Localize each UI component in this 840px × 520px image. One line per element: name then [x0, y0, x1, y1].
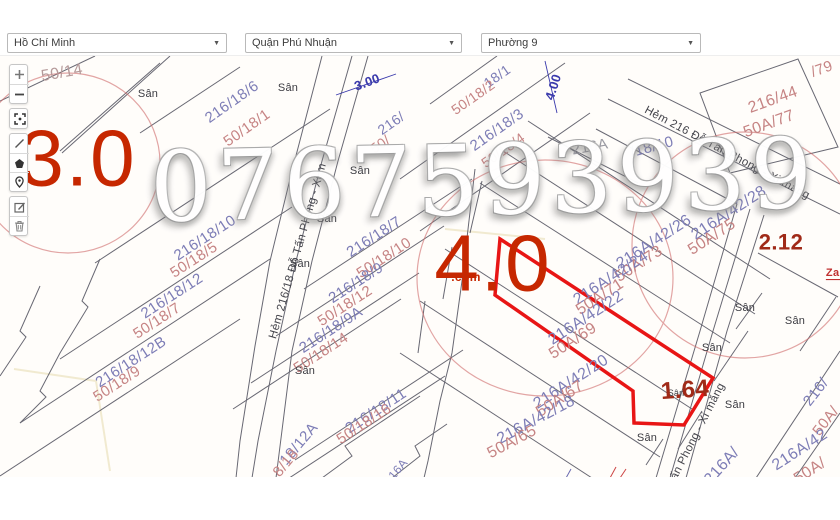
yard-label: Sân: [702, 342, 722, 354]
parcel-label: 50/: [367, 132, 393, 157]
red-measure-label: 2.12: [759, 230, 803, 255]
yard-label: Sân: [278, 82, 298, 94]
parcel-label: 50/14: [40, 61, 84, 85]
map-pin-icon: [14, 176, 25, 188]
map-app: { "header": { "city": "Hồ Chí Minh", "di…: [0, 0, 840, 520]
edit-button[interactable]: [10, 197, 29, 216]
fullscreen-button[interactable]: [10, 109, 29, 128]
yard-label: Sân: [785, 315, 805, 327]
parcel-label: /79: [809, 57, 836, 81]
fullscreen-group: [9, 108, 28, 129]
zoom-controls: [9, 64, 28, 104]
draw-polygon-button[interactable]: [10, 153, 29, 172]
yard-label: Sân: [295, 365, 315, 377]
parcel-label: 16A: [385, 456, 410, 478]
minus-icon: [14, 89, 25, 100]
add-marker-button[interactable]: [10, 172, 29, 191]
contact-fragment: Zalo: [826, 267, 840, 279]
city-select-value: Hồ Chí Minh: [14, 37, 209, 49]
yard-label: Sân: [637, 432, 657, 444]
district-select-value: Quận Phú Nhuận: [252, 37, 444, 49]
parcel-label: 50/18/2: [448, 76, 498, 118]
yard-label: Sân: [317, 213, 337, 225]
red-measure-label: 3.0: [19, 114, 136, 203]
delete-button[interactable]: [10, 216, 29, 235]
map-labels: 50/14216/18/650/18/118/150/18/2216/18/35…: [19, 57, 840, 478]
edit-tools-group: [9, 196, 28, 236]
yard-label: Sân: [290, 258, 310, 270]
ward-select[interactable]: Phường 9 ▼: [481, 33, 701, 53]
polygon-icon: [14, 158, 25, 169]
line-icon: [14, 138, 25, 149]
plus-icon: [14, 69, 25, 80]
draw-tools-group: [9, 133, 28, 192]
parcel-label: 216A/: [701, 444, 743, 478]
chevron-down-icon: ▼: [687, 40, 694, 47]
footer-whitespace: [0, 477, 840, 520]
dimension-label: 3.00: [352, 70, 382, 93]
watermark-com: .com: [451, 270, 481, 284]
trash-icon: [14, 220, 25, 232]
map-svg: 50/14216/18/650/18/118/150/18/2216/18/35…: [0, 56, 840, 478]
map-canvas[interactable]: 50/14216/18/650/18/118/150/18/2216/18/35…: [0, 55, 840, 478]
chevron-down-icon: ▼: [213, 40, 220, 47]
block-label: 216A: [570, 135, 609, 158]
measure-line-button[interactable]: [10, 134, 29, 153]
city-select[interactable]: Hồ Chí Minh ▼: [7, 33, 227, 53]
zoom-in-button[interactable]: [10, 65, 29, 84]
parcel-label: /18/10: [628, 133, 675, 161]
yard-label: Sân: [735, 302, 755, 314]
district-select[interactable]: Quận Phú Nhuận ▼: [245, 33, 462, 53]
chevron-down-icon: ▼: [448, 40, 455, 47]
yard-label: Sân: [138, 88, 158, 100]
red-measure-label: 1.64: [660, 375, 710, 405]
ward-select-value: Phường 9: [488, 37, 683, 49]
yard-label: Sân: [725, 399, 745, 411]
zoom-out-button[interactable]: [10, 84, 29, 103]
red-measure-label: 4.0: [434, 219, 551, 308]
map-toolbar: [9, 64, 28, 236]
header-bar: Hồ Chí Minh ▼ Quận Phú Nhuận ▼ Phường 9 …: [0, 0, 840, 55]
edit-pencil-icon: [14, 201, 26, 213]
expand-arrows-icon: [14, 113, 26, 125]
yard-label: Sân: [350, 165, 370, 177]
